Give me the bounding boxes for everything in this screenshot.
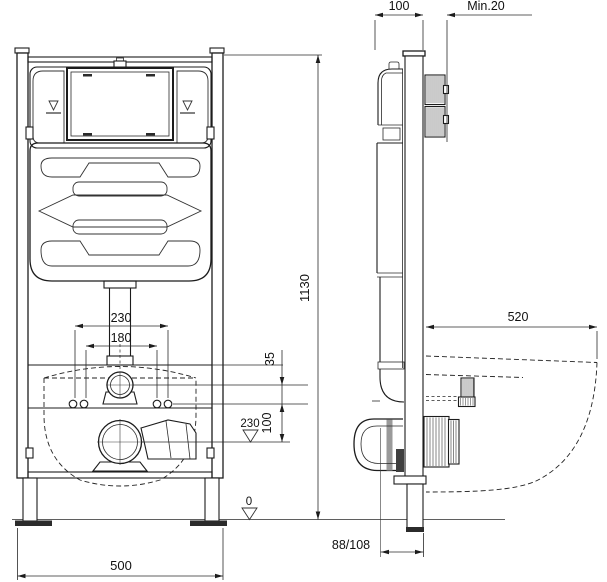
dim-inlet-offset-label: 35	[263, 352, 277, 366]
arrowhead	[375, 13, 383, 18]
right-wing	[177, 71, 208, 143]
elbow-seam-band	[387, 420, 393, 471]
level-mark-triangle-icon	[243, 430, 258, 442]
arrowhead	[280, 377, 285, 385]
cistern-access-module	[26, 67, 214, 148]
arrowhead	[589, 325, 597, 330]
dim-bowl-projection-label: 520	[508, 310, 529, 324]
cistern-recess	[383, 128, 400, 140]
left-foot-plate	[15, 521, 52, 527]
cistern-body	[30, 143, 211, 281]
drawing-sheet: 230 180 35 100 230 0	[0, 0, 607, 582]
fixing-bolt	[80, 400, 88, 408]
floor-level-label: 0	[246, 496, 252, 508]
right-foot-plate	[190, 521, 227, 527]
dim-min-wall-label: Min.20	[467, 0, 505, 13]
left-leg	[23, 478, 37, 521]
right-post-cap	[210, 48, 224, 53]
frame-clip	[26, 448, 33, 458]
pipe-collar	[378, 362, 404, 369]
arrowhead	[280, 434, 285, 442]
frame-clip	[26, 127, 33, 139]
water-level-icon	[49, 101, 58, 110]
flush-pipe	[104, 281, 136, 374]
arrowhead	[149, 344, 157, 349]
foot-bracket	[394, 476, 426, 484]
dim-frame-depth-label: 100	[389, 0, 410, 13]
level-mark-floor: 0	[242, 496, 257, 520]
cistern-emboss-ribbon	[41, 158, 200, 177]
elbow-bracket	[396, 449, 404, 472]
fixing-rod	[426, 378, 475, 407]
level-mark-outlet: 230	[240, 418, 259, 442]
outlet-level-label: 230	[240, 418, 259, 430]
arrowhead	[381, 550, 389, 555]
cistern-emboss-ribbon	[73, 182, 167, 196]
dim-frame-height-label: 1130	[297, 274, 312, 302]
dim-frame-width-label: 500	[110, 558, 132, 573]
side-section-view: 100 Min.20 520	[332, 0, 597, 557]
flush-bend	[380, 369, 404, 402]
cistern-emboss-arrow	[39, 195, 201, 227]
left-post-cap	[15, 48, 29, 53]
dim-outlet-distance-label: 88/108	[332, 538, 370, 552]
outlet-pipe	[424, 417, 459, 468]
actuation-tab	[444, 86, 449, 94]
cistern-valve-knob	[389, 62, 399, 69]
water-inlet-assembly	[103, 372, 137, 404]
dim-fixing-to-outlet-label: 100	[260, 413, 274, 434]
panel-mark	[83, 74, 92, 77]
foot-base	[406, 527, 424, 532]
frame-clip	[207, 127, 214, 139]
left-post	[17, 53, 28, 478]
plate-top-cap	[403, 51, 425, 56]
pipe-ribs	[427, 418, 445, 467]
side-foot	[394, 476, 426, 532]
fixing-bolt	[69, 400, 77, 408]
right-post	[212, 53, 223, 478]
left-wing	[33, 71, 64, 143]
fixing-bolt	[153, 400, 161, 408]
dim-fixing-inner-label: 180	[111, 331, 132, 345]
dim-frame-width: 500	[18, 528, 224, 580]
bowl-rim-line	[426, 375, 523, 378]
water-level-icon	[183, 101, 192, 110]
arrowhead	[18, 574, 26, 579]
bottom-rail	[28, 472, 212, 478]
right-leg	[205, 478, 219, 521]
panel-mark	[83, 133, 92, 136]
cistern-profile-inner	[382, 73, 404, 125]
arrowhead	[415, 13, 423, 18]
dim-min-wall-thickness: Min.20	[447, 0, 532, 17]
cistern-profile	[372, 62, 404, 402]
foot-stem	[407, 484, 423, 528]
fixing-bolt	[164, 400, 172, 408]
plate-body	[405, 56, 423, 477]
cistern-emboss-ribbon	[41, 241, 200, 266]
panel-mark	[146, 74, 155, 77]
rod-nut	[459, 397, 476, 407]
arrowhead	[316, 55, 321, 63]
arrowhead	[415, 550, 423, 555]
waste-outlet-assembly	[93, 419, 196, 471]
dim-frame-depth: 100	[375, 0, 423, 50]
panel-mark	[146, 133, 155, 136]
arrowhead	[160, 324, 168, 329]
front-elevation-view: 230 180 35 100 230 0	[15, 48, 322, 580]
arrowhead	[280, 404, 285, 412]
flush-cistern	[30, 143, 211, 281]
access-panel	[67, 68, 173, 140]
bowl-top-line	[426, 356, 597, 363]
technical-drawing: 230 180 35 100 230 0	[0, 0, 607, 582]
arrowhead	[447, 13, 455, 18]
arrowhead	[75, 324, 83, 329]
level-mark-triangle-icon	[242, 508, 257, 520]
flush-pipe-flange	[104, 281, 136, 288]
arrowhead	[215, 574, 223, 579]
arrowhead	[316, 512, 321, 520]
frame-plate	[403, 51, 425, 477]
drain-elbow	[354, 419, 404, 472]
actuation-tab	[444, 116, 449, 124]
actuation-unit	[425, 20, 449, 142]
dim-fixing-outer-label: 230	[111, 311, 132, 325]
arrowhead	[426, 325, 434, 330]
dim-frame-height: 1130	[224, 55, 322, 520]
dim-bowl-projection: 520	[426, 310, 597, 359]
arrowhead	[86, 344, 94, 349]
frame-clip	[207, 448, 214, 458]
